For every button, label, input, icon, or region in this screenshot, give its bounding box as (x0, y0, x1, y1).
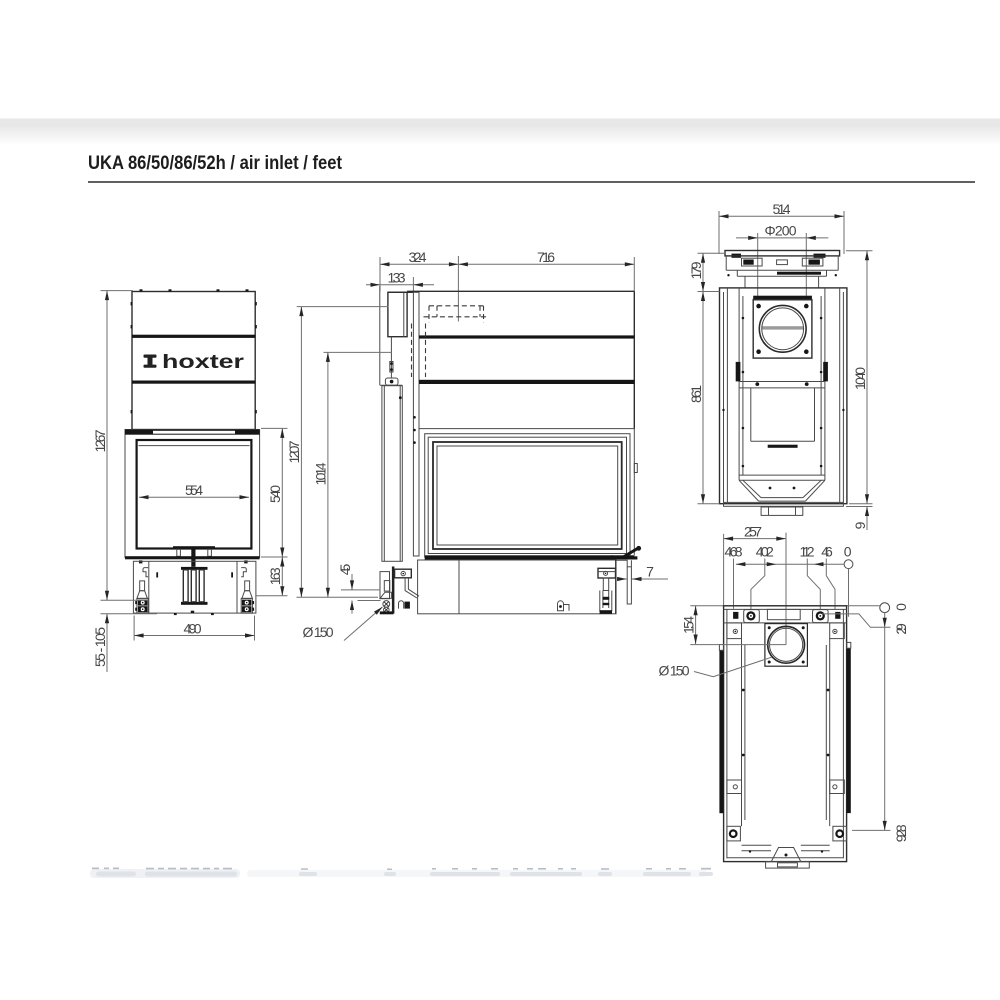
svg-text:133: 133 (388, 270, 406, 286)
svg-text:Ø 150: Ø 150 (659, 663, 690, 679)
svg-text:1014: 1014 (313, 462, 329, 485)
svg-text:716: 716 (537, 249, 555, 265)
svg-text:928: 928 (893, 824, 909, 842)
svg-text:9: 9 (852, 521, 868, 529)
svg-text:402: 402 (756, 543, 774, 559)
svg-text:179: 179 (688, 261, 704, 279)
svg-text:0: 0 (844, 543, 852, 559)
svg-text:257: 257 (744, 523, 762, 539)
svg-text:46: 46 (821, 543, 833, 559)
svg-text:1207: 1207 (286, 440, 302, 463)
svg-text:554: 554 (185, 482, 203, 498)
svg-text:0: 0 (893, 603, 909, 611)
svg-text:hoxter: hoxter (162, 351, 245, 373)
svg-text:154: 154 (680, 616, 696, 634)
svg-text:45: 45 (337, 564, 353, 576)
svg-text:490: 490 (184, 620, 202, 636)
svg-text:29: 29 (893, 623, 909, 635)
svg-text:7: 7 (646, 564, 654, 580)
svg-text:163: 163 (267, 567, 283, 585)
svg-text:468: 468 (725, 543, 743, 559)
svg-text:324: 324 (409, 249, 427, 265)
svg-text:Ø 150: Ø 150 (303, 624, 334, 640)
svg-text:Φ200: Φ200 (765, 223, 797, 239)
svg-text:1267: 1267 (92, 429, 108, 452)
svg-text:514: 514 (773, 201, 791, 217)
svg-text:112: 112 (800, 543, 815, 559)
svg-text:1040: 1040 (852, 367, 868, 390)
svg-text:540: 540 (267, 485, 283, 503)
svg-text:861: 861 (688, 385, 704, 403)
svg-text:55 - 105: 55 - 105 (92, 627, 108, 667)
svg-text:UKA 86/50/86/52h / air inlet /: UKA 86/50/86/52h / air inlet / feet (88, 153, 343, 174)
